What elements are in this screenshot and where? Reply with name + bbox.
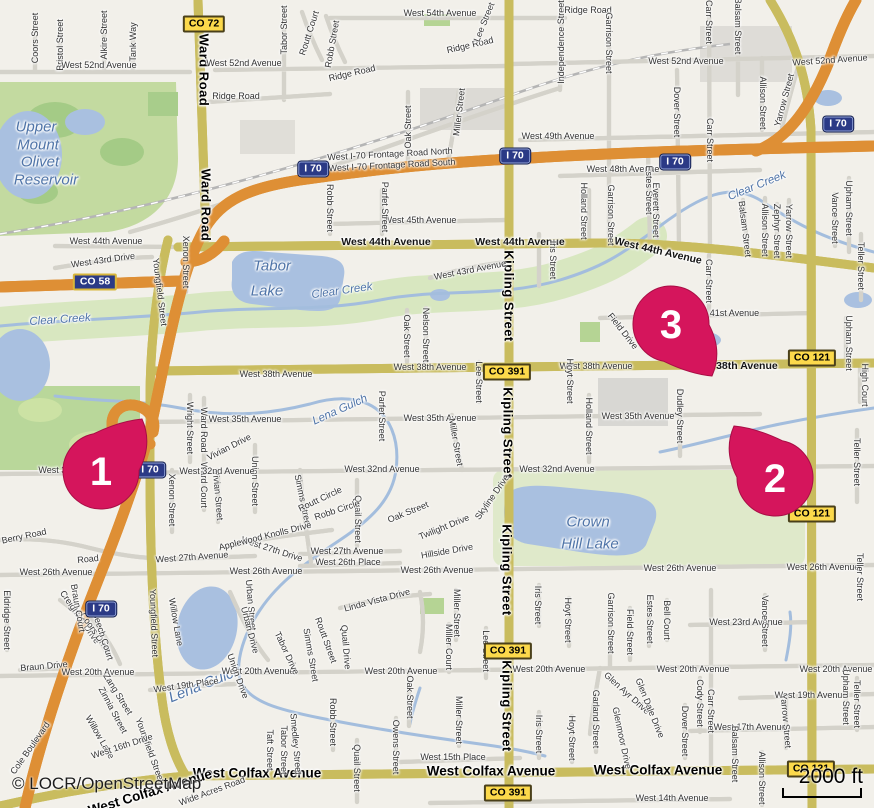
scale-bar bbox=[782, 788, 862, 798]
map-attribution: © LOCR/OpenStreetMap bbox=[12, 774, 201, 794]
scale-label: 2000 ft bbox=[799, 765, 863, 789]
map-marker-1[interactable]: 1 bbox=[41, 411, 161, 531]
map-marker-3[interactable]: 3 bbox=[611, 264, 731, 384]
map-markers-layer: 123 bbox=[0, 0, 874, 808]
svg-text:2: 2 bbox=[764, 457, 786, 501]
svg-text:1: 1 bbox=[90, 450, 112, 494]
map-marker-2[interactable]: 2 bbox=[715, 418, 835, 538]
map-canvas[interactable]: Ward RoadWard RoadKipling StreetKipling … bbox=[0, 0, 874, 808]
svg-text:3: 3 bbox=[660, 303, 682, 347]
